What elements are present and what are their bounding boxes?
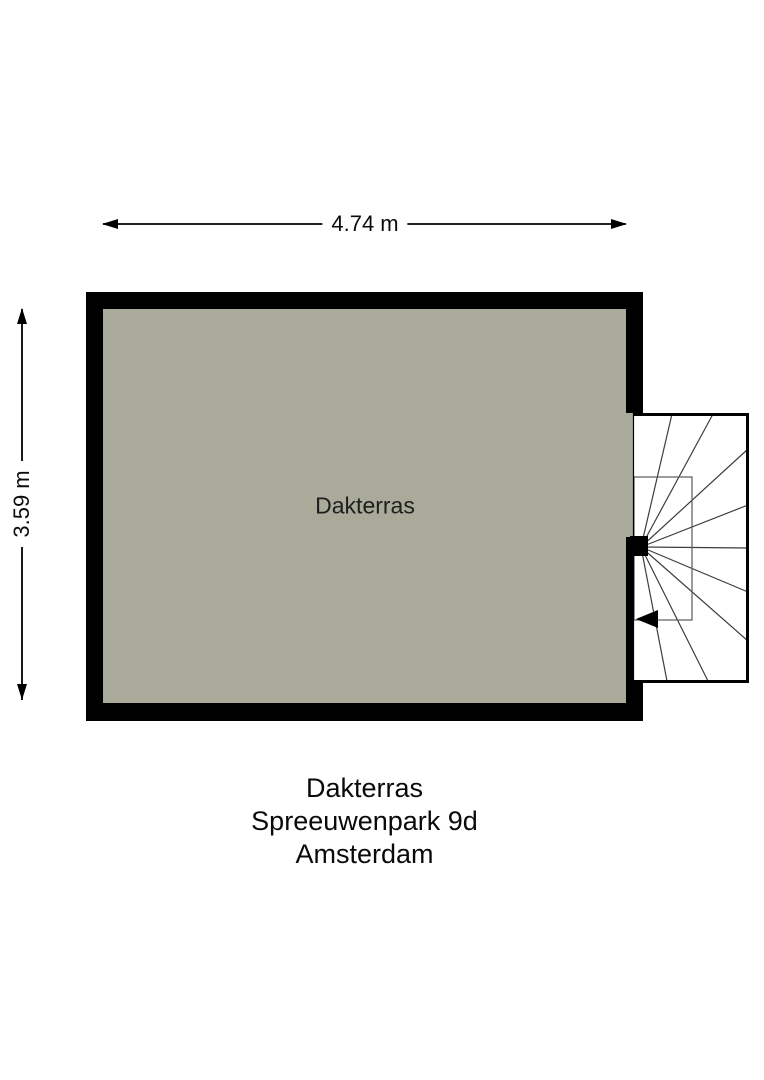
caption-city: Amsterdam	[0, 838, 729, 871]
width-dimension-label: 4.74 m	[322, 211, 407, 237]
floorplan-canvas	[0, 0, 764, 1080]
staircase	[630, 413, 749, 683]
arrow-up-icon	[17, 308, 27, 324]
height-dimension-label: 3.59 m	[9, 461, 35, 546]
height-dimension-label-wrap: 3.59 m	[9, 454, 35, 554]
caption-address: Spreeuwenpark 9d	[0, 805, 729, 838]
floorplan-page: { "floorplan": { "room_label": "Dakterra…	[0, 0, 764, 1080]
caption-room-name: Dakterras	[0, 772, 729, 805]
arrow-left-icon	[102, 219, 118, 229]
room-label: Dakterras	[315, 493, 415, 520]
arrow-right-icon	[611, 219, 627, 229]
arrow-down-icon	[17, 684, 27, 700]
caption: Dakterras Spreeuwenpark 9d Amsterdam	[0, 772, 729, 871]
stair-newel-post	[630, 536, 648, 556]
